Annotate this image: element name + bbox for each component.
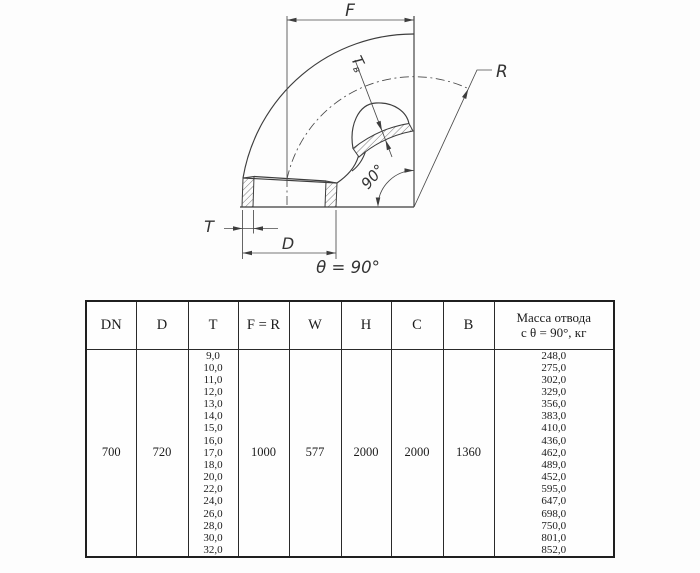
d-arrow-left	[243, 251, 253, 255]
theta-caption: θ = 90°	[316, 258, 380, 277]
d-arrow-right	[327, 251, 337, 255]
t-arrow-left	[233, 226, 243, 230]
elbow-drawing-area: F R T D Tв 90° θ = 90°	[0, 0, 700, 295]
col-header-fr: F = R	[238, 301, 289, 349]
col-header-mass: Масса отвода с θ = 90°, кг	[494, 301, 614, 349]
r-arrow	[462, 89, 468, 99]
cell-d: 720	[136, 349, 188, 557]
col-header-dn: DN	[86, 301, 136, 349]
col-header-h: H	[341, 301, 391, 349]
angle-arrow-lower	[376, 198, 381, 208]
elbow-body	[240, 16, 414, 207]
col-header-t: T	[188, 301, 238, 349]
bottom-wall-right	[325, 181, 337, 207]
cell-b: 1360	[443, 349, 494, 557]
catalog-page: F R T D Tв 90° θ = 90° DN D T F = R W H …	[0, 0, 700, 573]
dimensions-table: DN D T F = R W H C B Масса отвода с θ = …	[85, 300, 615, 558]
dim-label-f: F	[345, 1, 355, 21]
cell-c: 2000	[391, 349, 443, 557]
bottom-wall-left	[242, 177, 254, 208]
inner-arc	[337, 156, 359, 183]
dimension-lines	[224, 16, 492, 259]
cell-dn: 700	[86, 349, 136, 557]
angle-arrow-right	[405, 168, 415, 173]
mass-values-list: 248,0 275,0 302,0 329,0 356,0 383,0 410,…	[496, 350, 613, 557]
f-arrow-right	[405, 18, 415, 22]
cell-fr: 1000	[238, 349, 289, 557]
cell-mass-values: 248,0 275,0 302,0 329,0 356,0 383,0 410,…	[494, 349, 614, 557]
col-header-c: C	[391, 301, 443, 349]
f-arrow-left	[287, 18, 297, 22]
col-header-b: B	[443, 301, 494, 349]
bend-angle-label: 90°	[357, 161, 388, 193]
t-values-list: 9,0 10,0 11,0 12,0 13,0 14,0 15,0 16,0 1…	[190, 350, 237, 557]
cell-t-values: 9,0 10,0 11,0 12,0 13,0 14,0 15,0 16,0 1…	[188, 349, 238, 557]
elbow-technical-drawing: F R T D Tв 90° θ = 90°	[0, 0, 700, 295]
col-header-d: D	[136, 301, 188, 349]
table-header-row: DN D T F = R W H C B Масса отвода с θ = …	[86, 301, 614, 349]
dim-label-t: T	[204, 217, 215, 236]
t-arrow-right	[254, 226, 264, 230]
r-leader-line	[414, 70, 492, 207]
table-data-row: 700 720 9,0 10,0 11,0 12,0 13,0 14,0 15,…	[86, 349, 614, 557]
dim-label-d: D	[282, 234, 294, 253]
wall-sections	[242, 124, 413, 208]
tb-arrow-lower	[386, 140, 392, 150]
outer-arc	[243, 34, 414, 178]
tb-arrow-upper	[376, 121, 382, 131]
top-wall-band	[353, 124, 413, 158]
dimension-arrows	[233, 18, 468, 255]
dim-label-tb: Tв	[346, 53, 370, 75]
cell-h: 2000	[341, 349, 391, 557]
dim-label-r: R	[496, 62, 508, 82]
col-header-w: W	[289, 301, 341, 349]
cell-w: 577	[289, 349, 341, 557]
